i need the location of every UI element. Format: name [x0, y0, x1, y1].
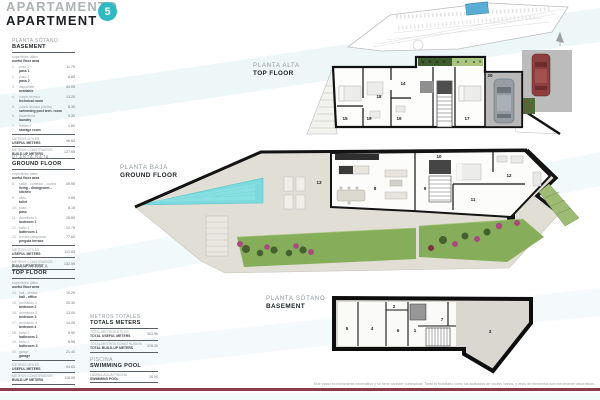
area-row: 4. cuarto técnico technical room 13.20 — [12, 95, 75, 103]
row-value: 3.65 — [68, 196, 75, 200]
footer-divider — [0, 388, 600, 391]
total-row: METROS ÚTILES USEFUL METERS 112.65 — [12, 245, 75, 257]
row-number: 4. — [12, 95, 19, 99]
total-value: 96.65 — [66, 139, 75, 143]
row-names: disponible available — [19, 85, 64, 93]
area-row: 18. baño 2 bathroom 2 6.90 — [12, 331, 75, 339]
row-value: 8.30 — [68, 105, 75, 109]
row-name-en: bathroom 2 — [19, 335, 66, 339]
row-number: 1. — [12, 65, 19, 69]
total-row: METROS CONSTRUIDOS BUILD-UP METERS 118.0… — [12, 372, 75, 384]
row-value: 13.00 — [66, 311, 75, 315]
roof-pool — [466, 2, 489, 15]
area-row: 15. dormitorio 2 bedroom 2 20.30 — [12, 301, 75, 309]
room-number: 7 — [441, 317, 444, 322]
row-name-en: bedroom 2 — [19, 305, 64, 309]
row-number: 13. — [12, 235, 19, 239]
total-labels: METROS ÚTILES USEFUL METERS — [12, 363, 64, 371]
room-number: 8 — [374, 186, 377, 191]
room-number: 18 — [376, 94, 382, 99]
area-row: 16. dormitorio 3 bedroom 3 13.00 — [12, 311, 75, 319]
row-names: hall - oficina hall - office — [19, 291, 64, 299]
total-value: 26.00 — [149, 375, 158, 379]
area-row: 13. terraza pergolada pergola terrace 77… — [12, 235, 75, 243]
section-subtitle-en: useful floor area — [12, 285, 75, 289]
section-totals: METROS ÚTILES USEFUL METERS 94.65 METROS… — [12, 360, 75, 385]
apartment-number-badge: 5 — [98, 2, 117, 21]
room-number: 19 — [366, 116, 372, 121]
area-row: 14. hall - oficina hall - office 10.25 — [12, 291, 75, 299]
room-number: 12 — [506, 173, 512, 178]
row-value: 6.85 — [68, 75, 75, 79]
row-value: 26.85 — [66, 216, 75, 220]
total-label-en: TOTAL USEFUL METERS — [90, 334, 145, 338]
row-name-en: toilet — [19, 200, 66, 204]
basement-plan: 1 2 3 4 5 6 7 — [258, 292, 600, 384]
row-value: 13.20 — [66, 95, 75, 99]
grand-totals: TOTAL METROS ÚTILES TOTAL USEFUL METERS … — [90, 328, 158, 353]
total-label-en: USEFUL METERS — [12, 367, 64, 371]
total-value: 303.95 — [147, 332, 158, 336]
row-names: dormitorio 1 bedroom 1 — [19, 216, 64, 224]
room-number: 11 — [471, 197, 476, 202]
total-row: METROS ÚTILES USEFUL METERS 96.65 — [12, 134, 75, 146]
row-names: salón - comedor - cocina living - dining… — [19, 182, 64, 194]
row-names: cuarto técnico technical room — [19, 95, 64, 103]
roof-lawn — [452, 58, 483, 66]
total-labels: TOTAL METROS CONSTRUIDOS TOTAL BUILD-UP … — [90, 342, 145, 350]
row-number: 8. — [12, 182, 19, 186]
area-row: 11. dormitorio 1 bedroom 1 26.85 — [12, 216, 75, 224]
red-car — [532, 54, 550, 96]
area-row: 20. garaje garage 21.40 — [12, 350, 75, 358]
divider — [12, 169, 75, 170]
section-ground-floor: PLANTA BAJA GROUND FLOOR superficies úti… — [12, 155, 75, 270]
garden-steps — [206, 216, 228, 256]
total-label-en: BUILD-UP METERS — [12, 378, 62, 382]
total-labels: METROS CONSTRUIDOS BUILD-UP METERS — [12, 374, 62, 382]
room-number: 4 — [371, 326, 374, 331]
row-value: 20.30 — [66, 301, 75, 305]
area-row: 3. disponible available 44.05 — [12, 85, 75, 93]
area-rows: 1. paso 1 pass 1 11.75 2. paso 2 pass 2 … — [12, 65, 75, 132]
total-value: 112.65 — [64, 250, 75, 254]
row-names: paso 1 pass 1 — [19, 65, 64, 73]
total-label-en: TOTAL BUILD-UP METERS — [90, 346, 145, 350]
row-names: dormitorio 3 bedroom 3 — [19, 311, 64, 319]
row-names: baño 2 bathroom 2 — [19, 331, 66, 339]
area-row: 5. cuarto técnico piscina swimming pool … — [12, 105, 75, 113]
total-label-en: USEFUL METERS — [12, 252, 62, 256]
area-rows: 14. hall - oficina hall - office 10.25 1… — [12, 291, 75, 358]
row-number: 18. — [12, 331, 19, 335]
room-number: 13 — [316, 180, 322, 185]
row-number: 5. — [12, 105, 19, 109]
room-number: 5 — [346, 326, 349, 331]
row-name-en: available — [19, 89, 64, 93]
section-subtitle-en: useful floor area — [12, 176, 75, 180]
row-names: baño 3 bathroom 3 — [19, 340, 66, 348]
plan-sheet: APARTAMENTO APARTMENT 5 PLANTA SÓTANO BA… — [0, 0, 600, 400]
row-value: 8.15 — [68, 206, 75, 210]
total-row: METROS ÚTILES USEFUL METERS 94.65 — [12, 360, 75, 372]
kitchen-counter — [335, 154, 379, 160]
row-value: 1.60 — [68, 124, 75, 128]
ground-floor-plan: 8 9 10 11 12 13 — [113, 140, 600, 292]
row-number: 20. — [12, 350, 19, 354]
section-subtitle-en: useful floor area — [12, 59, 75, 63]
disclaimer-text: Este plano es meramente informativo y no… — [210, 382, 595, 386]
row-number: 9. — [12, 196, 19, 200]
totals-column: METROS TOTALES TOTALS METERS TOTAL METRO… — [90, 314, 158, 383]
stairs — [426, 328, 450, 346]
planter — [523, 98, 535, 114]
total-labels: METROS ÚTILES USEFUL METERS — [12, 248, 62, 256]
row-number: 17. — [12, 321, 19, 325]
row-name-en: bathroom 1 — [19, 230, 64, 234]
total-labels: LÁMINA AGUA PISCINA SWIMMING POOL — [90, 373, 147, 381]
room-number: 1 — [414, 328, 417, 333]
stairs — [437, 81, 452, 127]
area-row: 6. lavandería laundry 9.30 — [12, 114, 75, 122]
section-title-en: GROUND FLOOR — [12, 161, 75, 167]
row-name-en: bedroom 1 — [19, 220, 64, 224]
row-number: 15. — [12, 301, 19, 305]
row-name-en: pass — [19, 210, 66, 214]
room-number: 17 — [464, 116, 470, 121]
void — [420, 81, 434, 93]
shower-block — [410, 304, 426, 320]
room-number: 3 — [489, 329, 492, 334]
bed — [457, 164, 481, 180]
total-row: TOTAL METROS CONSTRUIDOS TOTAL BUILD-UP … — [90, 340, 158, 352]
row-name-en: pass 2 — [19, 79, 66, 83]
total-label-en: USEFUL METERS — [12, 141, 64, 145]
total-row: TOTAL METROS ÚTILES TOTAL USEFUL METERS … — [90, 328, 158, 340]
total-labels: METROS ÚTILES USEFUL METERS — [12, 137, 64, 145]
area-row: 19. baño 3 bathroom 3 6.95 — [12, 340, 75, 348]
row-name-en: technical room — [19, 99, 64, 103]
row-number: 19. — [12, 340, 19, 344]
divider — [12, 278, 75, 279]
row-value: 14.05 — [66, 321, 75, 325]
row-name-en: bedroom 4 — [19, 325, 64, 329]
area-row: 10. paso pass 8.15 — [12, 206, 75, 214]
room-number: 20 — [487, 73, 493, 78]
row-names: baño 1 bathroom 1 — [19, 226, 64, 234]
row-number: 14. — [12, 291, 19, 295]
room-number: 10 — [436, 154, 442, 159]
totals-title-en: TOTALS METERS — [90, 320, 158, 326]
row-number: 10. — [12, 206, 19, 210]
row-value: 11.75 — [66, 65, 75, 69]
row-number: 2. — [12, 75, 19, 79]
row-value: 49.95 — [66, 182, 75, 186]
row-number: 12. — [12, 226, 19, 230]
room-number: 16 — [396, 116, 402, 121]
row-names: cuarto técnico piscina swimming pool tec… — [19, 105, 66, 113]
row-value: 6.95 — [68, 340, 75, 344]
total-label-en: SWIMMING POOL — [90, 377, 147, 381]
row-value: 9.30 — [68, 114, 75, 118]
row-names: dormitorio 2 bedroom 2 — [19, 301, 64, 309]
pool-title-en: SWIMMING POOL — [90, 363, 158, 369]
room-number: 9 — [424, 186, 427, 191]
stairs — [429, 160, 451, 202]
row-name-en: pass 1 — [19, 69, 64, 73]
row-names: terraza pergolada pergola terrace — [19, 235, 64, 243]
area-rows: 8. salón - comedor - cocina living - din… — [12, 182, 75, 243]
row-value: 10.25 — [66, 291, 75, 295]
row-name-en: bedroom 3 — [19, 315, 64, 319]
area-row: 12. baño 1 bathroom 1 12.75 — [12, 226, 75, 234]
row-value: 77.60 — [66, 235, 75, 239]
row-names: dormitorio 4 bedroom 4 — [19, 321, 64, 329]
row-name-en: laundry — [19, 118, 66, 122]
total-value: 127.60 — [64, 150, 75, 154]
pool-block: PISCINA SWIMMING POOL LÁMINA AGUA PISCIN… — [90, 357, 158, 384]
total-row: LÁMINA AGUA PISCINA SWIMMING POOL 26.00 — [90, 371, 158, 383]
row-name-en: storage room — [19, 128, 66, 132]
row-value: 12.75 — [66, 226, 75, 230]
pool-rows: LÁMINA AGUA PISCINA SWIMMING POOL 26.00 — [90, 371, 158, 384]
top-floor-plan: 14 15 16 17 18 19 20 — [233, 46, 600, 146]
row-names: paso pass — [19, 206, 66, 214]
area-row: 2. paso 2 pass 2 6.85 — [12, 75, 75, 83]
total-value: 118.05 — [64, 376, 75, 380]
room-number: 2 — [393, 304, 396, 309]
area-row: 1. paso 1 pass 1 11.75 — [12, 65, 75, 73]
row-number: 16. — [12, 311, 19, 315]
row-name-en: living - diningroom - kitchen — [19, 186, 64, 194]
total-value: 378.20 — [147, 344, 158, 348]
section-title-en: BASEMENT — [12, 44, 75, 50]
room-number: 6 — [397, 328, 400, 333]
row-number: 3. — [12, 85, 19, 89]
row-names: paso 2 pass 2 — [19, 75, 66, 83]
north-arrow-icon — [556, 32, 564, 46]
row-number: 11. — [12, 216, 19, 220]
area-row: 8. salón - comedor - cocina living - din… — [12, 182, 75, 194]
row-name-en: bathroom 3 — [19, 344, 66, 348]
section-top-floor: PLANTA ALTA TOP FLOOR superficies útiles… — [12, 264, 75, 385]
area-row: 17. dormitorio 4 bedroom 4 14.05 — [12, 321, 75, 329]
row-number: 6. — [12, 114, 19, 118]
section-title-en: TOP FLOOR — [12, 270, 75, 276]
row-value: 44.05 — [66, 85, 75, 89]
row-names: garaje garage — [19, 350, 64, 358]
total-labels: TOTAL METROS ÚTILES TOTAL USEFUL METERS — [90, 330, 145, 338]
lawn-right — [419, 219, 544, 262]
row-name-en: hall - office — [19, 295, 64, 299]
row-names: lavandería laundry — [19, 114, 66, 122]
row-names: trastero storage room — [19, 124, 66, 132]
row-name-en: pergola terrace — [19, 239, 64, 243]
section-basement: PLANTA SÓTANO BASEMENT superficies útile… — [12, 38, 75, 159]
area-row: 9. aseo toilet 3.65 — [12, 196, 75, 204]
row-names: aseo toilet — [19, 196, 66, 204]
area-row: 7. trastero storage room 1.60 — [12, 124, 75, 132]
row-value: 6.90 — [68, 331, 75, 335]
row-name-en: swimming pool tech. room — [19, 109, 66, 113]
garage-car — [494, 79, 514, 123]
total-value: 94.65 — [66, 365, 75, 369]
divider — [12, 52, 75, 53]
row-name-en: garage — [19, 354, 64, 358]
room-number: 14 — [400, 81, 406, 86]
row-number: 7. — [12, 124, 19, 128]
room-number: 15 — [342, 116, 348, 121]
row-value: 21.40 — [66, 350, 75, 354]
